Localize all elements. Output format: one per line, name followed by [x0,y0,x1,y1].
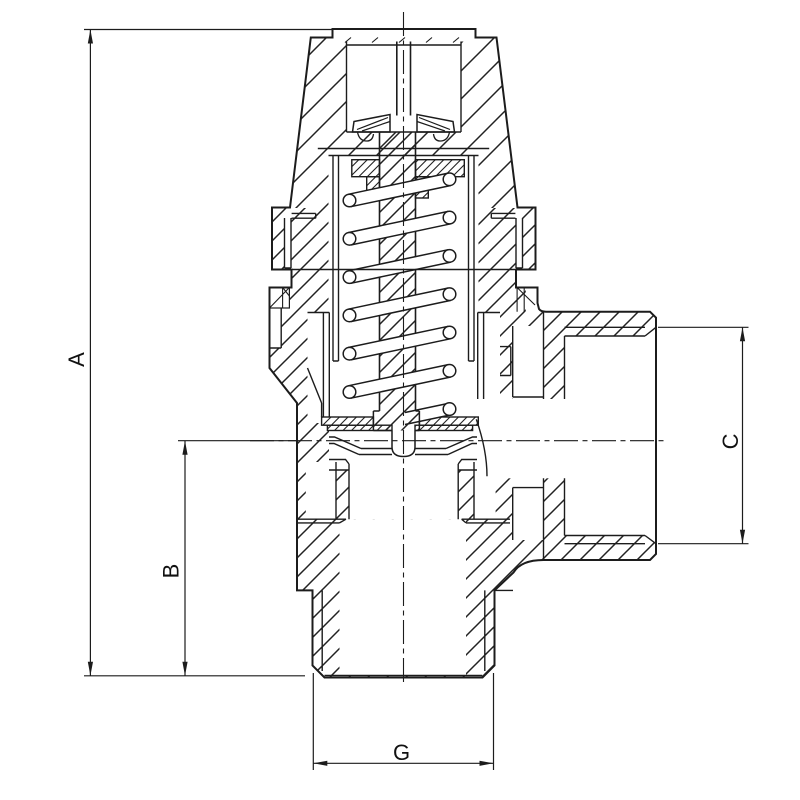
svg-text:B: B [159,564,184,579]
svg-text:G: G [393,740,410,765]
svg-text:C: C [718,433,743,449]
svg-text:A: A [64,352,89,367]
